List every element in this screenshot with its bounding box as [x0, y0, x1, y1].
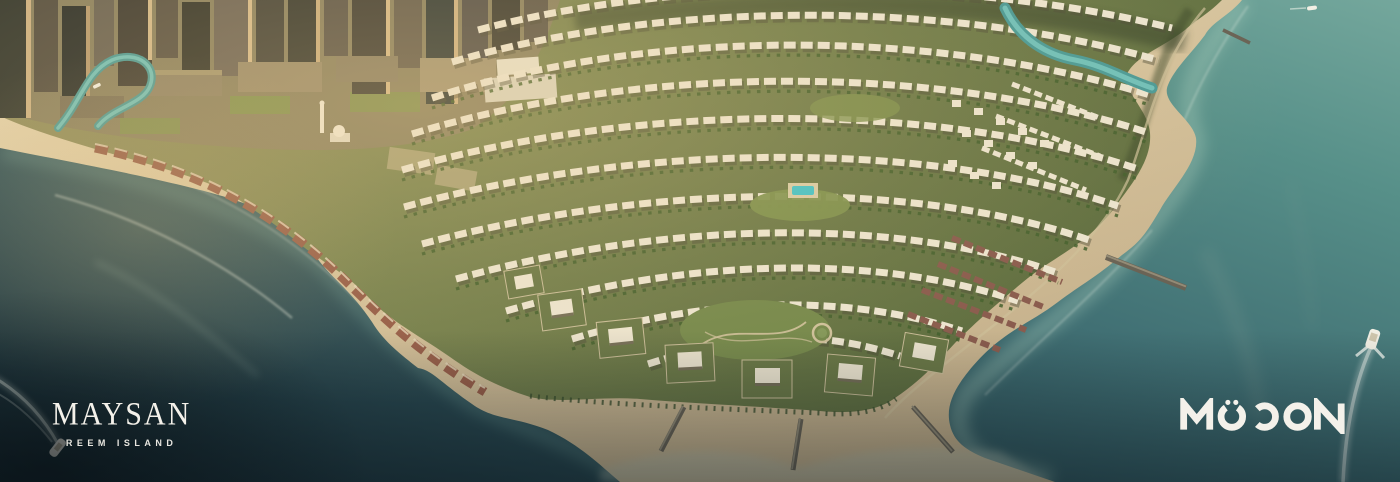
modon-letter-n	[1317, 404, 1341, 430]
modon-letter-o	[1287, 406, 1309, 428]
modon-dot-left	[1225, 400, 1230, 405]
modon-letter-d-reversed	[1254, 406, 1276, 428]
maysan-logo: MAYSAN REEM ISLAND	[52, 398, 191, 448]
maysan-subtitle: REEM ISLAND	[52, 438, 191, 448]
modon-letter-o-open	[1221, 406, 1243, 428]
hero-banner: MAYSAN REEM ISLAND MODON	[0, 0, 1400, 482]
modon-logo: MODON	[1178, 398, 1348, 434]
maysan-wordmark: MAYSAN	[52, 398, 191, 431]
modon-wordmark	[1178, 398, 1348, 434]
modon-letter-m	[1184, 404, 1210, 430]
modon-dot-right	[1233, 400, 1238, 405]
